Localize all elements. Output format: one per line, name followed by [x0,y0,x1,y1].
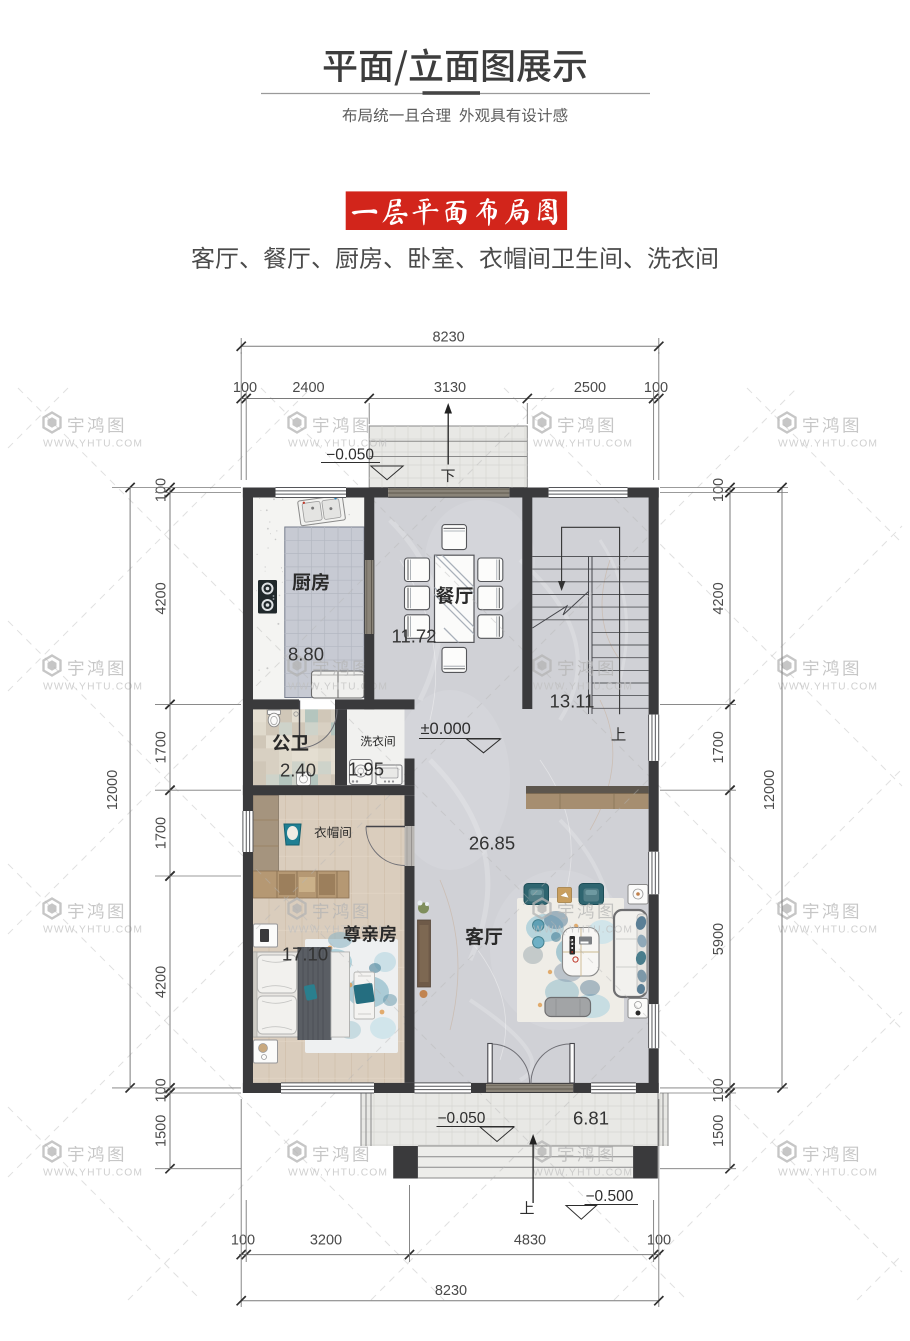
svg-text:−0.050: −0.050 [326,447,374,464]
svg-text:8230: 8230 [432,330,464,346]
svg-text:12000: 12000 [105,770,121,810]
svg-text:100: 100 [154,478,170,502]
svg-text:1.95: 1.95 [348,759,384,780]
svg-text:8.80: 8.80 [288,644,324,665]
svg-text:WWW.YHTU.COM: WWW.YHTU.COM [533,439,633,450]
svg-text:WWW.YHTU.COM: WWW.YHTU.COM [533,925,633,936]
svg-text:WWW.YHTU.COM: WWW.YHTU.COM [533,1168,633,1179]
svg-text:1700: 1700 [711,731,727,763]
svg-text:WWW.YHTU.COM: WWW.YHTU.COM [43,682,143,693]
svg-text:WWW.YHTU.COM: WWW.YHTU.COM [778,925,878,936]
svg-text:WWW.YHTU.COM: WWW.YHTU.COM [288,1168,388,1179]
svg-text:±0.000: ±0.000 [421,720,471,738]
svg-text:1700: 1700 [154,731,170,763]
svg-text:WWW.YHTU.COM: WWW.YHTU.COM [778,682,878,693]
svg-text:WWW.YHTU.COM: WWW.YHTU.COM [43,1168,143,1179]
svg-text:26.85: 26.85 [469,833,515,854]
svg-text:4200: 4200 [711,582,727,614]
svg-text:WWW.YHTU.COM: WWW.YHTU.COM [43,925,143,936]
svg-text:5900: 5900 [711,923,727,955]
svg-text:4200: 4200 [154,582,170,614]
svg-text:17.10: 17.10 [282,944,328,965]
svg-text:100: 100 [231,1233,255,1249]
svg-text:2500: 2500 [574,380,606,396]
svg-text:1500: 1500 [711,1115,727,1147]
svg-text:4200: 4200 [154,966,170,998]
svg-text:WWW.YHTU.COM: WWW.YHTU.COM [778,1168,878,1179]
svg-text:6.81: 6.81 [573,1108,609,1129]
svg-text:3200: 3200 [310,1233,342,1249]
svg-text:12000: 12000 [762,770,778,810]
svg-text:3130: 3130 [434,380,466,396]
svg-text:WWW.YHTU.COM: WWW.YHTU.COM [43,439,143,450]
svg-text:1700: 1700 [154,817,170,849]
svg-text:100: 100 [644,380,668,396]
svg-text:2.40: 2.40 [280,760,316,781]
svg-text:−0.500: −0.500 [586,1188,634,1205]
svg-text:2400: 2400 [292,380,324,396]
svg-text:1500: 1500 [154,1115,170,1147]
svg-text:100: 100 [154,1078,170,1102]
svg-text:100: 100 [711,478,727,502]
svg-text:13.11: 13.11 [550,691,595,712]
svg-text:8230: 8230 [435,1283,467,1299]
svg-text:−0.050: −0.050 [438,1110,486,1127]
svg-text:11.72: 11.72 [392,626,437,647]
svg-text:100: 100 [711,1078,727,1102]
svg-text:WWW.YHTU.COM: WWW.YHTU.COM [778,439,878,450]
svg-text:4830: 4830 [514,1233,546,1249]
